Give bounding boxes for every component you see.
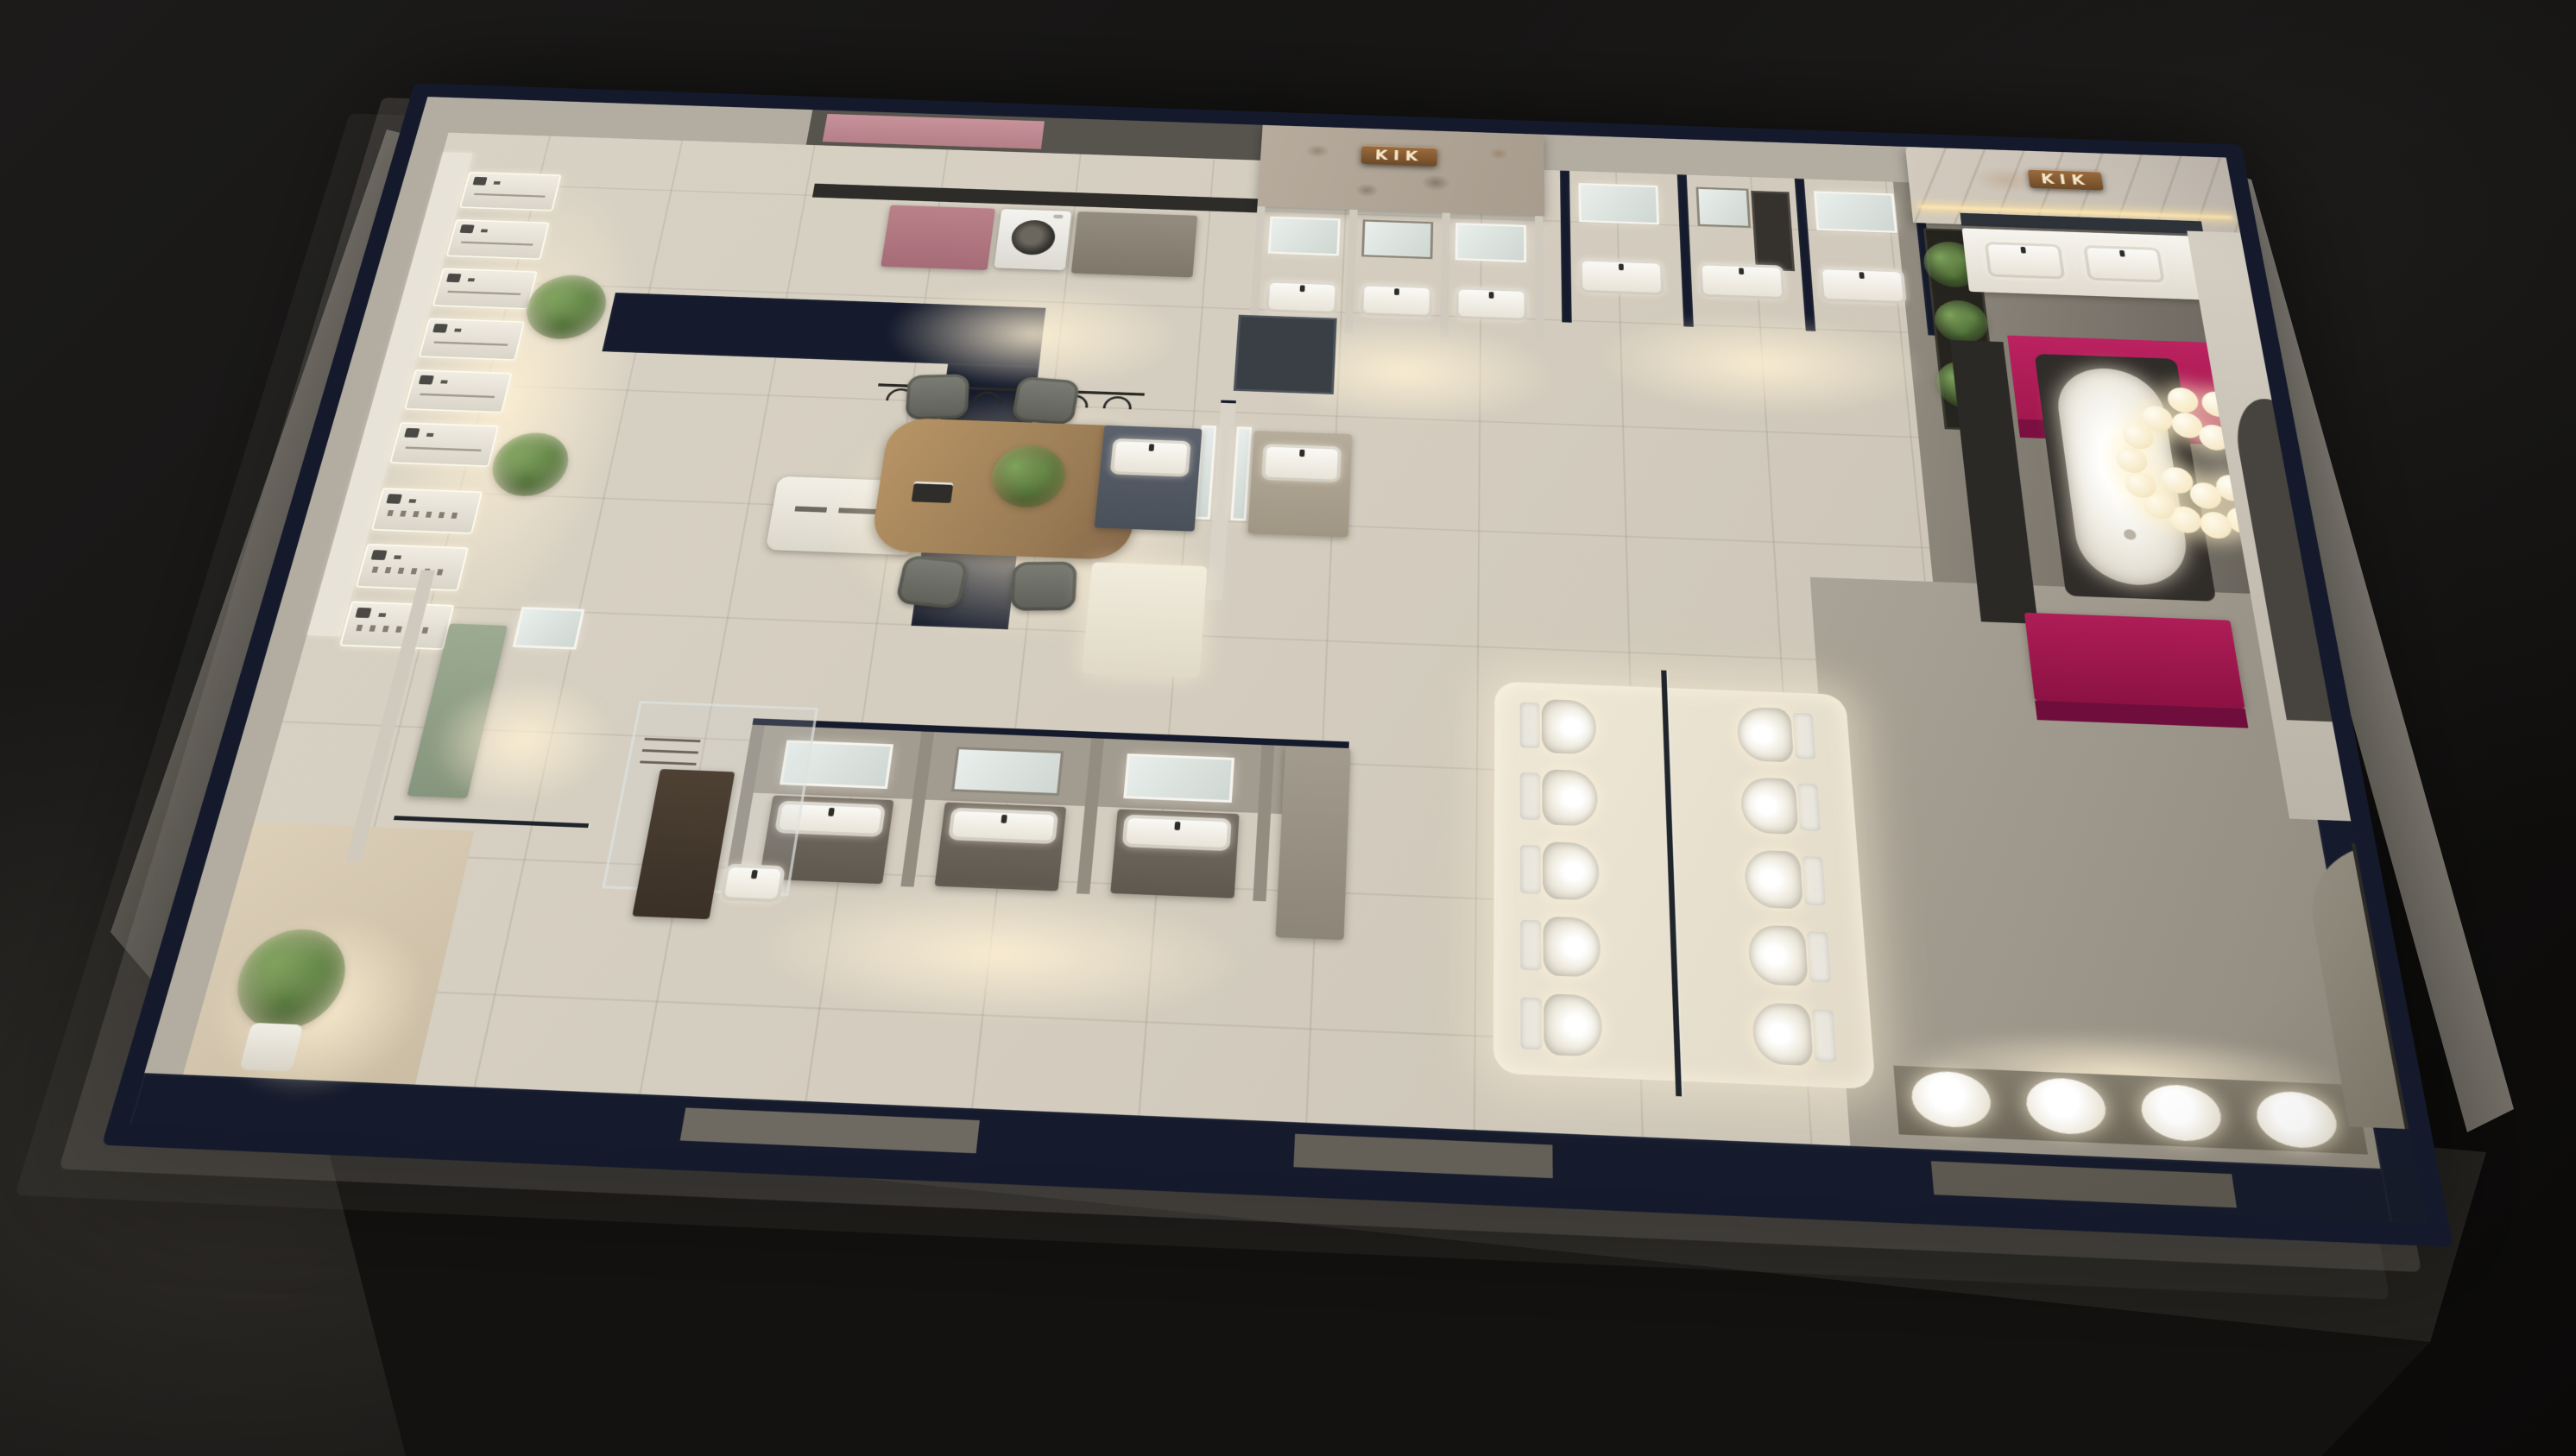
showroom-volume: KIK — [102, 83, 2453, 1247]
floor-vignette — [129, 97, 2427, 1224]
showroom-floorplate: KIK — [129, 97, 2427, 1224]
render-stage: KIK — [0, 0, 2576, 1456]
